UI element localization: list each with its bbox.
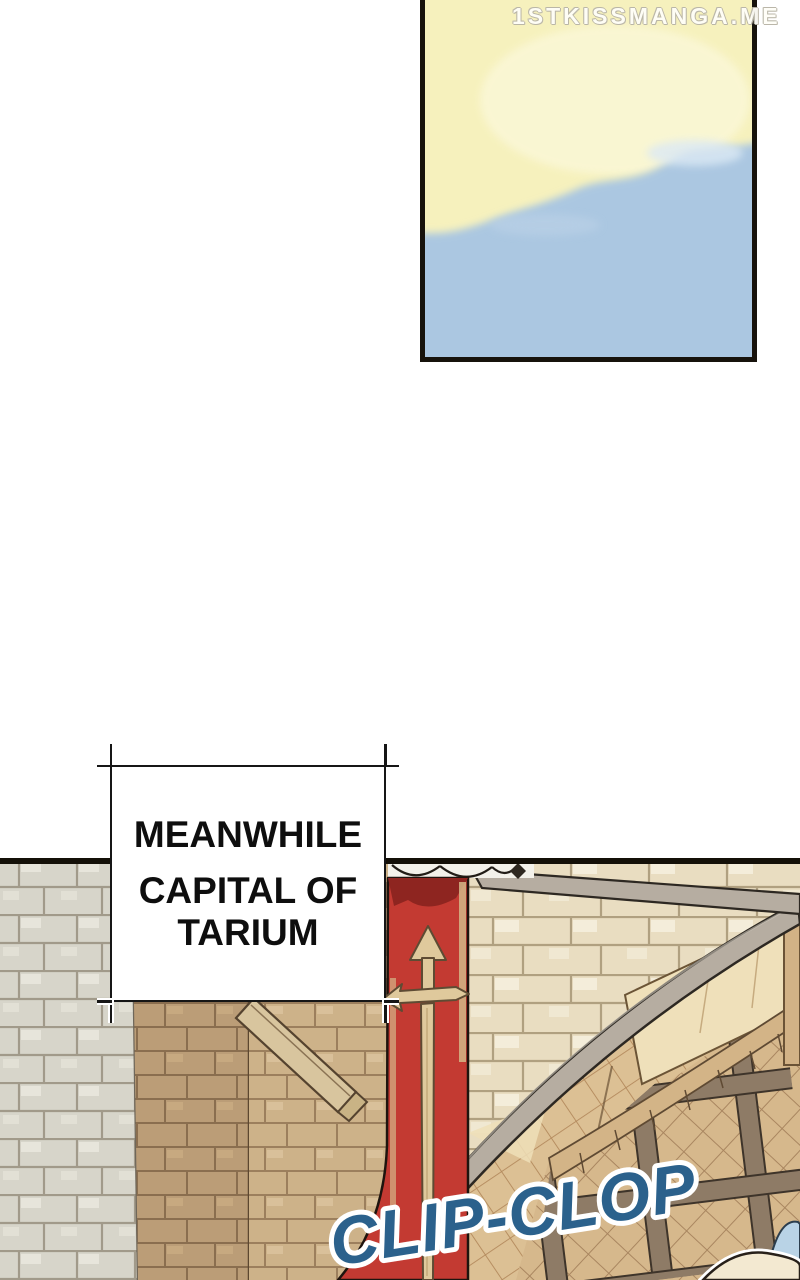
caption-line-tarium: TARIUM [139, 912, 358, 953]
caption-line-capital-of: CAPITAL OF [139, 870, 358, 911]
caption-location: CAPITAL OF TARIUM [139, 870, 358, 953]
cloud-wisp [647, 140, 743, 166]
corner-tick [384, 765, 399, 768]
sky-art [425, 0, 752, 357]
cloud-wisp-2 [490, 214, 600, 236]
corner-tick [97, 765, 112, 768]
banner-left-hem [390, 978, 396, 1228]
banner-right-hem [459, 882, 466, 1062]
corner-tick [110, 1000, 113, 1023]
comic-page: 1STKISSMANGA.ME [0, 0, 800, 1280]
caption-line-meanwhile: MEANWHILE [134, 814, 362, 855]
arch-right-jamb [784, 920, 800, 1065]
corner-tick [384, 1000, 387, 1023]
sky-panel [420, 0, 757, 362]
site-watermark: 1STKISSMANGA.ME [512, 3, 800, 30]
narration-box: MEANWHILE CAPITAL OF TARIUM [110, 765, 386, 1002]
corner-tick [384, 1000, 399, 1003]
corner-tick [97, 1000, 112, 1003]
